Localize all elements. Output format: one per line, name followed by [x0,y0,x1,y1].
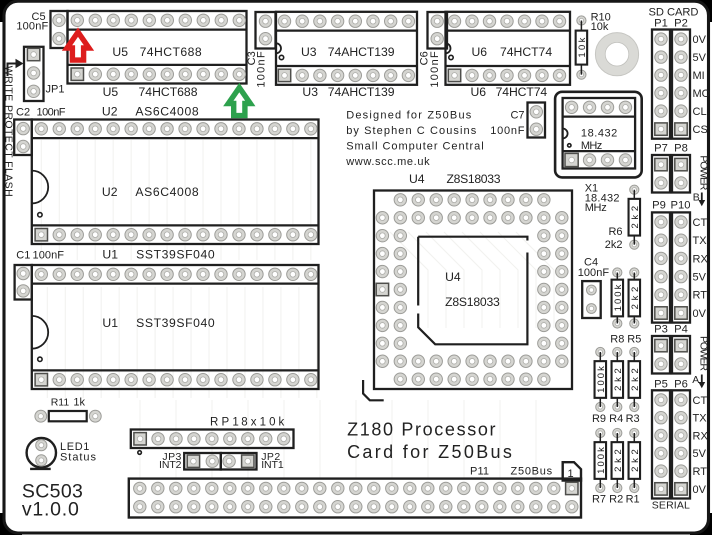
svg-text:100nF: 100nF [429,51,441,88]
svg-text:POWER: POWER [697,155,709,190]
svg-text:v1.0.0: v1.0.0 [22,499,79,521]
svg-text:RX: RX [693,430,709,442]
svg-text:74HCT688: 74HCT688 [140,45,202,59]
svg-text:AS6C4008: AS6C4008 [135,185,198,199]
svg-text:TX: TX [693,235,708,247]
svg-text:MI: MI [693,70,705,82]
svg-text:Z8S18033: Z8S18033 [445,295,500,309]
svg-text:B: B [693,191,700,203]
svg-text:by Stephen C Cousins: by Stephen C Cousins [346,125,477,137]
svg-text:2k2: 2k2 [613,368,624,391]
svg-text:RP1: RP1 [210,417,239,429]
svg-text:5V: 5V [693,52,707,64]
svg-text:CS: CS [693,124,708,136]
svg-text:POWER: POWER [697,336,709,371]
svg-text:RT: RT [693,290,708,302]
svg-text:100nF: 100nF [16,21,48,33]
svg-text:Small Computer Central: Small Computer Central [346,140,484,152]
svg-text:2k2: 2k2 [630,449,641,472]
svg-text:P3: P3 [654,324,668,336]
svg-text:R4: R4 [609,413,623,425]
svg-text:P4: P4 [674,324,688,336]
svg-text:A: A [692,374,699,386]
svg-text:CT: CT [693,217,708,229]
svg-text:P10: P10 [671,200,691,212]
svg-text:0V: 0V [693,34,707,46]
svg-text:100nF: 100nF [33,250,65,262]
svg-text:P1: P1 [654,17,668,29]
svg-text:R3: R3 [626,413,640,425]
svg-text:U1: U1 [102,248,118,262]
svg-text:MHz: MHz [585,202,607,214]
svg-text:U5: U5 [103,85,119,99]
svg-text:INT1: INT1 [261,459,284,471]
svg-text:U2: U2 [102,185,118,199]
svg-text:R7: R7 [592,494,606,506]
svg-text:R5: R5 [627,333,641,345]
svg-text:CL: CL [693,106,707,118]
svg-text:74AHCT139: 74AHCT139 [328,45,395,59]
svg-text:0V: 0V [693,308,707,320]
svg-text:74HCT74: 74HCT74 [500,45,552,59]
svg-text:SST39SF040: SST39SF040 [136,316,215,330]
svg-text:INT2: INT2 [159,459,182,471]
svg-text:P2: P2 [674,17,688,29]
svg-text:U6: U6 [472,45,488,59]
svg-text:R2: R2 [609,494,623,506]
svg-text:100nF: 100nF [256,51,268,88]
svg-text:2k2: 2k2 [613,449,624,472]
svg-text:2k2: 2k2 [630,368,641,391]
svg-text:1k: 1k [73,397,85,409]
svg-text:Status: Status [60,452,97,464]
svg-text:P8: P8 [674,143,688,155]
svg-text:U4: U4 [409,172,425,186]
svg-text:MO: MO [693,88,711,100]
svg-text:P9: P9 [652,200,666,212]
svg-text:RT: RT [693,466,708,478]
svg-text:P5: P5 [654,379,668,391]
svg-text:5V: 5V [693,272,707,284]
svg-text:U3: U3 [301,45,317,59]
svg-text:SST39SF040: SST39SF040 [136,248,215,262]
svg-text:WRITE PROTECT FLASH: WRITE PROTECT FLASH [3,66,15,197]
svg-text:10k: 10k [591,21,609,33]
svg-text:P11: P11 [470,466,489,478]
svg-text:TX: TX [693,413,708,425]
svg-text:74AHCT139: 74AHCT139 [328,85,395,99]
svg-text:Z8S18033: Z8S18033 [447,172,501,186]
svg-text:2k2: 2k2 [630,206,641,229]
svg-text:5V: 5V [693,448,707,460]
svg-text:100nF: 100nF [578,267,610,279]
svg-text:CT: CT [693,395,708,407]
svg-text:P7: P7 [654,143,668,155]
svg-text:R1: R1 [626,494,640,506]
svg-text:100nF: 100nF [37,107,66,119]
svg-text:C2: C2 [16,107,30,119]
svg-text:U6: U6 [471,85,487,99]
svg-text:74HCT688: 74HCT688 [139,85,198,99]
svg-text:U4: U4 [445,270,461,284]
svg-text:10k: 10k [577,37,588,57]
svg-text:2k2: 2k2 [630,287,641,310]
svg-text:0V: 0V [693,484,707,496]
svg-text:R8: R8 [610,333,624,345]
svg-text:U2: U2 [102,105,118,119]
svg-text:Z50Bus: Z50Bus [511,466,553,478]
svg-text:Designed for Z50Bus: Designed for Z50Bus [346,110,472,122]
svg-text:P6: P6 [674,379,688,391]
svg-text:MHz: MHz [581,140,602,152]
svg-text:18.432: 18.432 [581,128,617,140]
svg-text:R11: R11 [51,397,70,409]
svg-text:U3: U3 [302,85,318,99]
svg-text:AS6C4008: AS6C4008 [135,105,198,119]
svg-text:R9: R9 [592,413,606,425]
svg-text:www.scc.me.uk: www.scc.me.uk [345,156,430,168]
svg-text:JP1: JP1 [46,83,65,95]
svg-text:C1: C1 [16,250,30,262]
svg-text:U5: U5 [112,45,128,59]
svg-text:RX: RX [693,253,709,265]
svg-text:C7: C7 [510,110,524,122]
svg-text:100nF: 100nF [490,125,525,137]
svg-text:R6: R6 [608,226,622,238]
svg-text:74HCT74: 74HCT74 [496,85,548,99]
svg-text:SERIAL: SERIAL [652,500,690,512]
svg-text:U1: U1 [102,316,118,330]
svg-text:2k2: 2k2 [605,239,623,251]
